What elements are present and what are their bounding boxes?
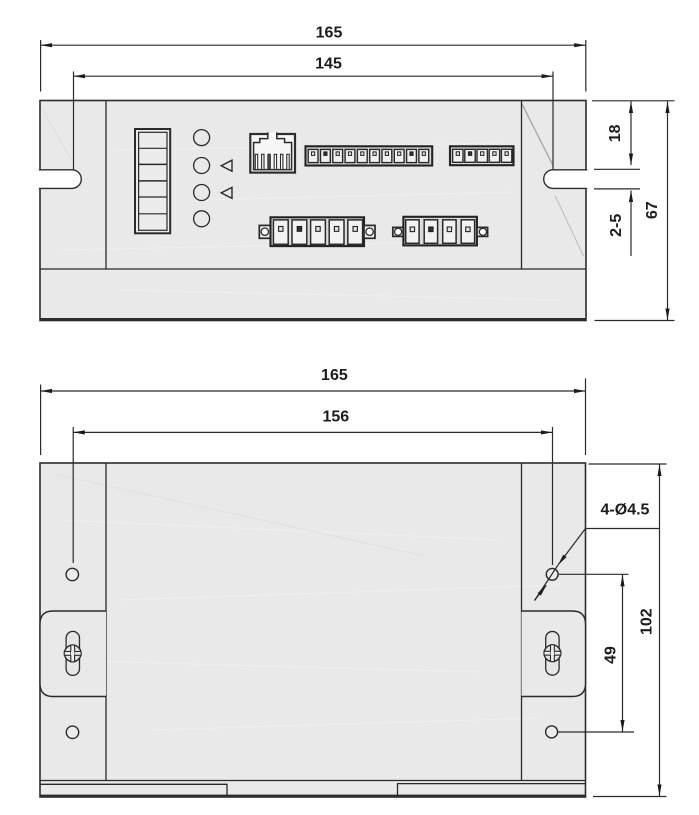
svg-text:49: 49 xyxy=(602,646,619,664)
svg-text:145: 145 xyxy=(315,56,342,73)
svg-text:165: 165 xyxy=(321,367,348,384)
svg-text:2-5: 2-5 xyxy=(608,214,625,237)
svg-text:156: 156 xyxy=(322,409,349,426)
svg-text:102: 102 xyxy=(638,608,655,635)
svg-text:18: 18 xyxy=(607,124,624,142)
svg-text:67: 67 xyxy=(644,201,661,219)
svg-text:165: 165 xyxy=(316,24,343,41)
svg-text:4-Ø4.5: 4-Ø4.5 xyxy=(601,501,650,518)
